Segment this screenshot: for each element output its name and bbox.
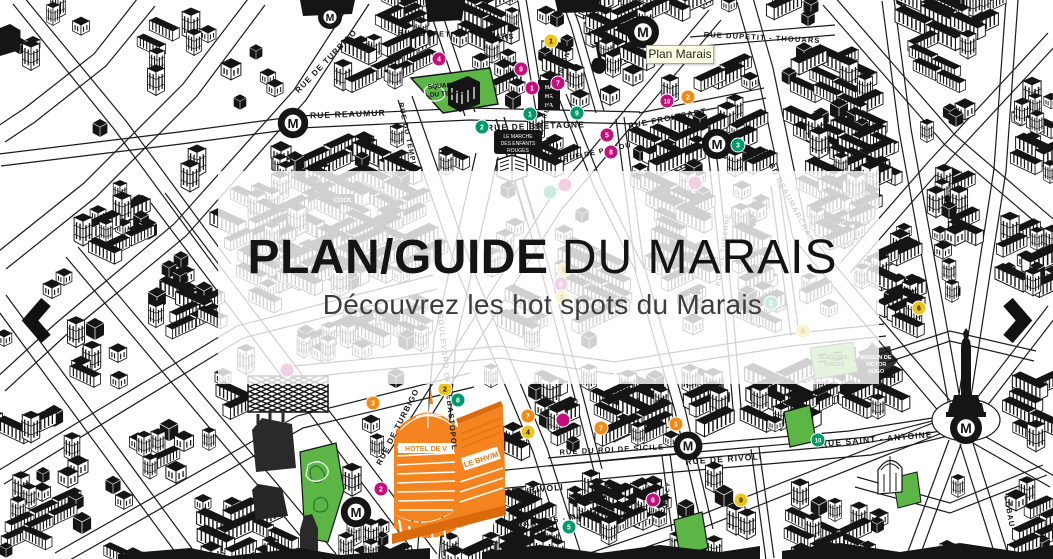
- svg-text:7: 7: [556, 81, 560, 88]
- svg-text:8: 8: [456, 398, 460, 405]
- svg-text:10: 10: [664, 100, 671, 106]
- svg-text:5: 5: [605, 133, 609, 140]
- svg-text:5: 5: [567, 525, 571, 532]
- svg-text:ROUGES: ROUGES: [507, 148, 529, 154]
- svg-text:3: 3: [736, 143, 740, 150]
- svg-text:8: 8: [609, 150, 613, 157]
- svg-text:2: 2: [480, 125, 484, 132]
- svg-text:3: 3: [371, 401, 375, 408]
- svg-text:9: 9: [575, 111, 579, 118]
- svg-text:1: 1: [528, 112, 532, 119]
- svg-text:4: 4: [526, 430, 530, 437]
- svg-text:2: 2: [686, 95, 690, 102]
- svg-text:7: 7: [599, 426, 603, 433]
- svg-text:LE MARCHE: LE MARCHE: [503, 134, 533, 140]
- svg-text:9: 9: [739, 498, 743, 505]
- svg-text:DES ENFANTS: DES ENFANTS: [501, 141, 536, 147]
- svg-text:6: 6: [917, 306, 921, 313]
- svg-text:HOTEL DE V: HOTEL DE V: [405, 446, 447, 453]
- svg-text:1: 1: [674, 422, 678, 429]
- svg-text:9: 9: [519, 67, 523, 74]
- svg-text:4: 4: [437, 57, 441, 64]
- svg-text:1: 1: [549, 39, 553, 46]
- svg-text:6: 6: [651, 498, 655, 505]
- svg-text:2: 2: [443, 387, 447, 394]
- svg-text:2: 2: [379, 487, 383, 494]
- svg-text:7: 7: [526, 414, 530, 421]
- svg-text:10: 10: [815, 439, 822, 445]
- svg-text:1: 1: [530, 86, 534, 93]
